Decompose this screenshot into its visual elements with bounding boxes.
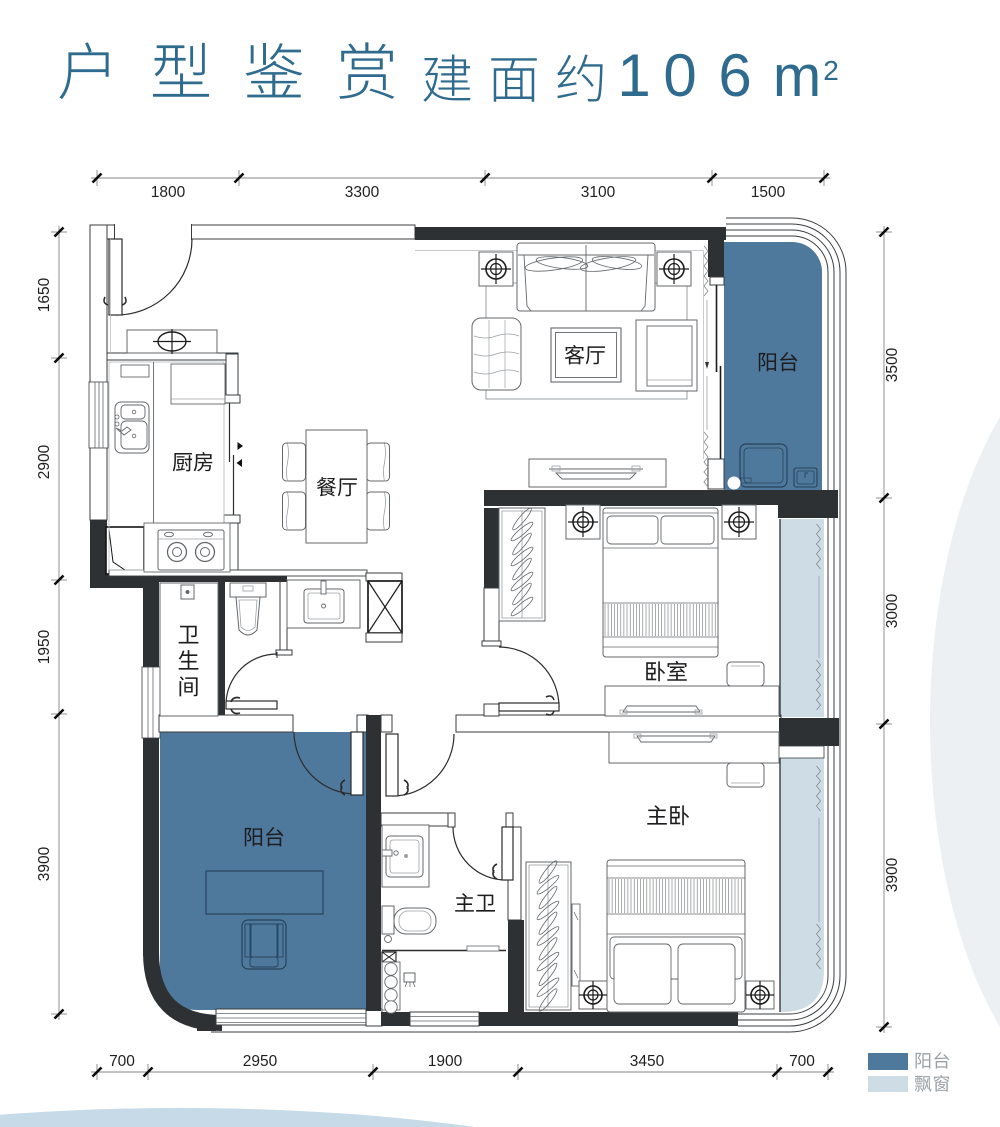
svg-text:3000: 3000	[884, 593, 901, 628]
svg-text:1650: 1650	[36, 277, 53, 312]
svg-text:3900: 3900	[884, 857, 901, 892]
svg-text:2950: 2950	[243, 1053, 278, 1070]
svg-text:700: 700	[789, 1053, 815, 1070]
svg-text:1950: 1950	[36, 629, 53, 664]
svg-text:6: 6	[718, 42, 751, 109]
svg-text:1800: 1800	[151, 184, 186, 201]
svg-text:3100: 3100	[581, 184, 616, 201]
svg-text:0: 0	[663, 42, 696, 109]
svg-text:3900: 3900	[36, 846, 53, 881]
svg-text:3450: 3450	[630, 1053, 665, 1070]
svg-text:3300: 3300	[345, 184, 380, 201]
svg-text:m: m	[773, 44, 821, 109]
svg-text:1: 1	[617, 42, 650, 109]
svg-text:3500: 3500	[884, 347, 901, 382]
svg-text:700: 700	[109, 1053, 135, 1070]
svg-text:1900: 1900	[428, 1053, 463, 1070]
svg-text:1500: 1500	[751, 184, 786, 201]
svg-text:2900: 2900	[36, 444, 53, 479]
svg-text:2: 2	[823, 55, 839, 86]
